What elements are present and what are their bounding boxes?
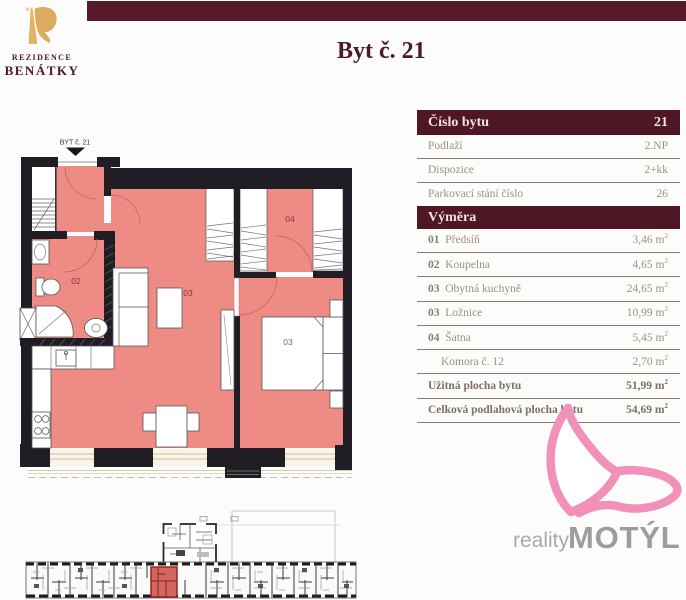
svg-text:04: 04 xyxy=(285,214,295,224)
svg-text:BYT č. 21: BYT č. 21 xyxy=(60,140,91,147)
svg-text:02: 02 xyxy=(71,276,81,286)
svg-text:03: 03 xyxy=(183,288,193,298)
svg-text:reality: reality xyxy=(513,529,570,552)
svg-text:MOTÝL: MOTÝL xyxy=(568,520,681,555)
svg-text:03: 03 xyxy=(283,337,293,347)
